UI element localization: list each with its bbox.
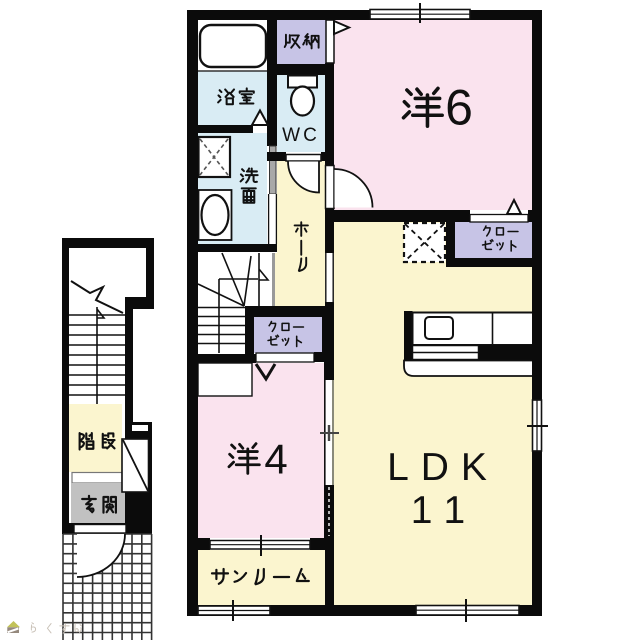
svg-text:WC: WC (282, 125, 320, 146)
svg-text:LDK: LDK (387, 446, 499, 489)
svg-text:4: 4 (264, 436, 287, 483)
svg-text:11: 11 (411, 489, 480, 532)
svg-text:6: 6 (445, 80, 473, 136)
